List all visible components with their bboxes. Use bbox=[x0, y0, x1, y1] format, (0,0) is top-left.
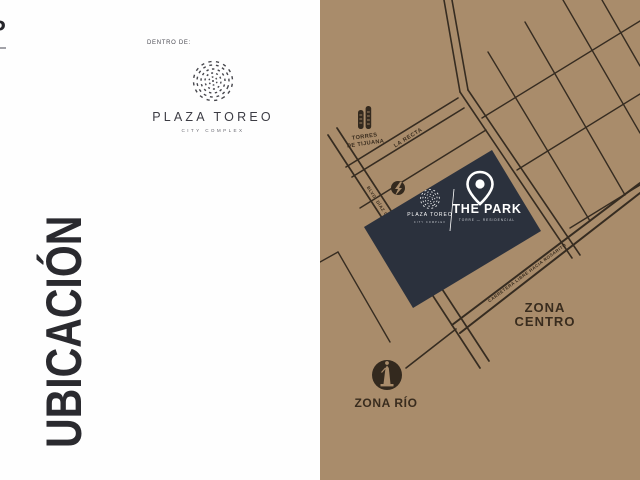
plaza-toreo-logo-tagline: CITY COMPLEX bbox=[133, 128, 293, 133]
corner-logo-tagline-fragment bbox=[0, 47, 6, 49]
dentro-de-label: DENTRO DE: bbox=[147, 40, 191, 46]
plaza-toreo-spiral-icon bbox=[183, 52, 243, 112]
page-title: UBICACIÓN bbox=[44, 216, 84, 448]
card-plaza-tagline: CITY COMPLEX bbox=[414, 221, 446, 224]
zona-rio-label: ZONA RÍO bbox=[354, 395, 417, 410]
card-plaza-name: PLAZA TOREO bbox=[407, 212, 453, 218]
card-park-subtitle: TORRE — RESIDENCIAL bbox=[459, 218, 515, 222]
zona-centro-line1: ZONA bbox=[525, 300, 566, 315]
plaza-toreo-logo-name: PLAZA TOREO bbox=[133, 110, 293, 124]
card-park-name: THE PARK bbox=[452, 202, 521, 216]
map-panel: LA RECTA BLVD. DÍAZ ORDAZ CARRETERA LIBR… bbox=[320, 0, 640, 480]
slide: P DENTRO DE: PLAZA TOREO CITY COMPLEX UB… bbox=[0, 0, 640, 480]
monument-icon bbox=[372, 360, 402, 390]
corner-logo-fragment: P bbox=[0, 18, 6, 40]
zona-centro-line2: CENTRO bbox=[515, 314, 576, 329]
left-panel: P DENTRO DE: PLAZA TOREO CITY COMPLEX UB… bbox=[0, 0, 320, 480]
